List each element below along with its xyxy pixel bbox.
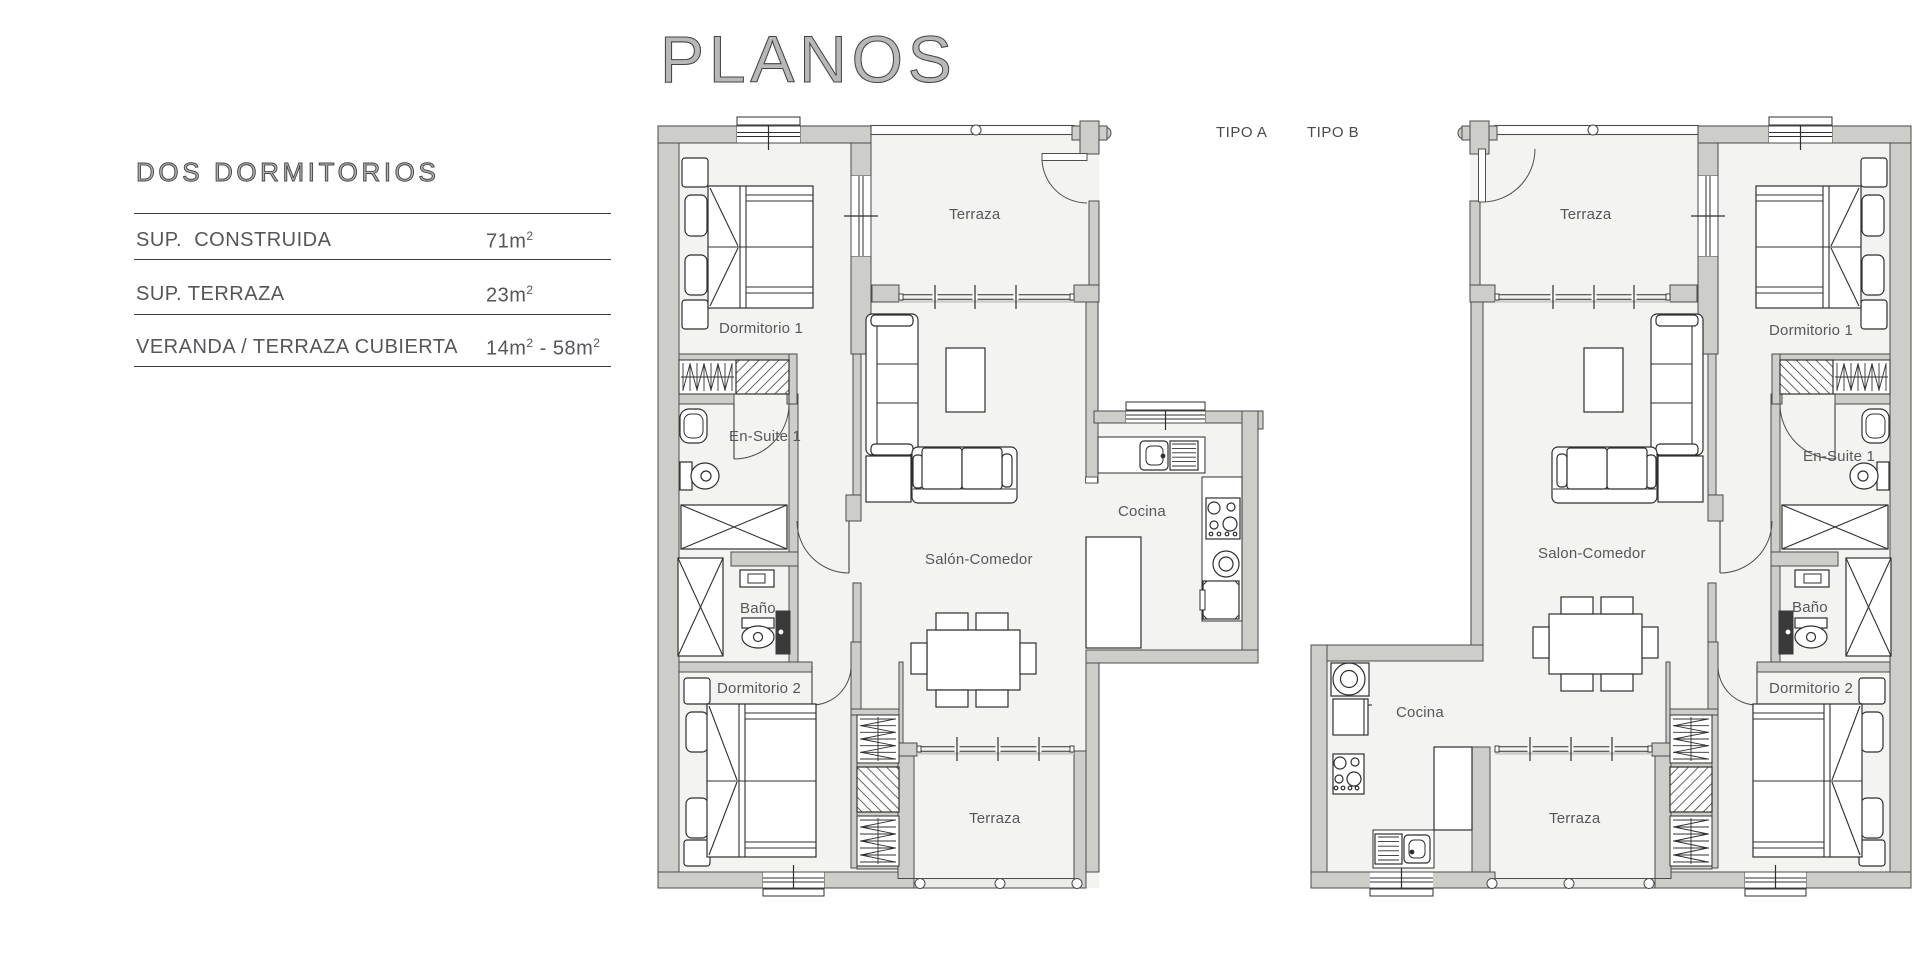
svg-text:Terraza: Terraza	[1560, 206, 1612, 223]
svg-text:Cocina: Cocina	[1118, 503, 1166, 520]
svg-text:Salon-Comedor: Salon-Comedor	[1538, 545, 1646, 562]
svg-text:Terraza: Terraza	[969, 810, 1021, 827]
svg-text:Dormitorio 2: Dormitorio 2	[717, 680, 801, 697]
svg-text:Cocina: Cocina	[1396, 704, 1444, 721]
svg-text:Terraza: Terraza	[949, 206, 1001, 223]
svg-text:Dormitorio 1: Dormitorio 1	[1769, 322, 1853, 339]
svg-text:En-Suite 1: En-Suite 1	[729, 428, 801, 445]
svg-text:Salón-Comedor: Salón-Comedor	[925, 551, 1033, 568]
svg-text:Dormitorio 2: Dormitorio 2	[1769, 680, 1853, 697]
svg-text:Terraza: Terraza	[1549, 810, 1601, 827]
svg-text:TIPO B: TIPO B	[1307, 124, 1359, 141]
svg-text:Baño: Baño	[1792, 599, 1828, 616]
svg-text:En-Suite 1: En-Suite 1	[1803, 448, 1875, 465]
svg-text:Dormitorio 1: Dormitorio 1	[719, 320, 803, 337]
svg-text:Baño: Baño	[740, 600, 776, 617]
svg-text:TIPO A: TIPO A	[1216, 124, 1267, 141]
